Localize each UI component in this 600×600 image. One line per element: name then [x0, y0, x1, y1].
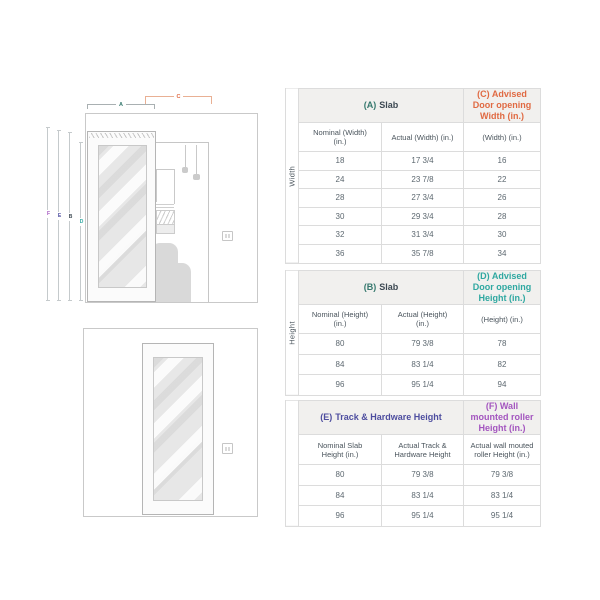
table-cell: 23 7/8	[382, 171, 463, 189]
column-header: Actual (Width) (in.)	[382, 123, 463, 151]
door-glass-panel	[98, 145, 147, 288]
table-cell: 35 7/8	[382, 245, 463, 263]
column-header: Actual Track & Hardware Height	[382, 435, 463, 464]
doorway-opening	[155, 142, 209, 302]
table-cell: 29 3/4	[382, 208, 463, 226]
table-cell: 32	[299, 226, 381, 244]
table-cell: 78	[464, 334, 540, 354]
slab-height-header: (B) Slab	[299, 271, 463, 304]
column-header: (Width) (in.)	[464, 123, 540, 151]
slab-width-header: (A) Slab	[299, 89, 463, 122]
advised-height-header: (D) Advised Door opening Height (in.)	[464, 271, 540, 304]
dimension-label-b: B	[68, 213, 74, 221]
dimension-line-e: E	[58, 130, 59, 301]
dimension-label-f: F	[46, 210, 52, 218]
light-switch-icon	[222, 231, 233, 241]
dimension-bracket-c: C	[145, 96, 212, 97]
column-header: Nominal (Width) (in.)	[299, 123, 381, 151]
table-cell: 79 3/8	[382, 334, 463, 354]
dimension-line-f: F	[47, 127, 48, 301]
table-side-spacer	[286, 401, 298, 526]
bed-sheets-icon	[156, 202, 174, 210]
table-cell: 30	[299, 208, 381, 226]
table-cell: 17 3/4	[382, 152, 463, 170]
dimension-label-d: D	[79, 218, 85, 226]
header-text-slab: Slab	[379, 100, 398, 111]
table-cell: 16	[464, 152, 540, 170]
table-cell: 95 1/4	[382, 506, 463, 526]
dimension-bracket-a: A	[87, 104, 155, 105]
track-hardware-table: (E) Track & Hardware Height (F) Wall mou…	[285, 400, 541, 527]
wall-roller-header: (F) Wall mounted roller Height (in.)	[464, 401, 540, 434]
table-cell: 96	[299, 375, 381, 395]
table-cell: 82	[464, 355, 540, 375]
bed-headboard-icon	[156, 169, 175, 204]
table-cell: 80	[299, 465, 381, 485]
sliding-door-slab	[87, 131, 156, 302]
table-cell: 31 3/4	[382, 226, 463, 244]
table-cell: 34	[464, 245, 540, 263]
header-letter-e: (E)	[320, 412, 332, 423]
table-cell: 83 1/4	[464, 486, 540, 506]
table-cell: 84	[299, 486, 381, 506]
closed-door-glass-panel	[153, 357, 203, 501]
table-cell: 94	[464, 375, 540, 395]
advised-width-header: (C) Advised Door opening Width (in.)	[464, 89, 540, 122]
column-header: Actual (Height) (in.)	[382, 305, 463, 333]
header-text-slab: Slab	[379, 282, 398, 293]
column-header: Nominal Slab Height (in.)	[299, 435, 381, 464]
dimension-label-a: A	[116, 102, 126, 109]
pendant-lamp-icon	[182, 167, 188, 173]
table-cell: 36	[299, 245, 381, 263]
width-table: Width (A) Slab (C) Advised Door opening …	[285, 88, 541, 264]
light-switch-icon	[222, 443, 233, 454]
table-cell: 30	[464, 226, 540, 244]
table-cell: 79 3/8	[464, 465, 540, 485]
sofa-arm-icon	[174, 263, 191, 302]
table-cell: 18	[299, 152, 381, 170]
table-cell: 95 1/4	[382, 375, 463, 395]
dimension-line-d: D	[80, 142, 81, 301]
column-header: Actual wall mouted roller Height (in.)	[464, 435, 540, 464]
table-cell: 28	[299, 189, 381, 207]
column-header: Nominal (Height) (in.)	[299, 305, 381, 333]
height-table-side-label: Height	[286, 271, 298, 395]
door-track-hatch	[89, 133, 154, 138]
pendant-lamp-icon	[193, 174, 200, 180]
table-cell: 79 3/8	[382, 465, 463, 485]
table-cell: 84	[299, 355, 381, 375]
table-cell: 83 1/4	[382, 486, 463, 506]
column-header: (Height) (in.)	[464, 305, 540, 333]
table-cell: 24	[299, 171, 381, 189]
table-cell: 80	[299, 334, 381, 354]
width-table-side-label: Width	[286, 89, 298, 263]
closed-door-slab	[142, 343, 214, 515]
dimension-line-b: B	[69, 132, 70, 301]
table-cell: 27 3/4	[382, 189, 463, 207]
table-cell: 22	[464, 171, 540, 189]
pendant-cord-icon	[185, 145, 186, 167]
table-cell: 95 1/4	[464, 506, 540, 526]
header-letter-b: (B)	[364, 282, 377, 293]
track-hardware-header: (E) Track & Hardware Height	[299, 401, 463, 434]
table-cell: 96	[299, 506, 381, 526]
table-cell: 28	[464, 208, 540, 226]
dimension-label-e: E	[57, 212, 63, 220]
table-cell: 26	[464, 189, 540, 207]
header-letter-a: (A)	[364, 100, 377, 111]
height-table: Height (B) Slab (D) Advised Door opening…	[285, 270, 541, 396]
header-text-track-hardware: Track & Hardware Height	[335, 412, 442, 423]
table-cell: 83 1/4	[382, 355, 463, 375]
pendant-cord-icon	[196, 145, 197, 174]
bed-base-icon	[156, 224, 175, 234]
dimension-label-c: C	[174, 94, 184, 101]
